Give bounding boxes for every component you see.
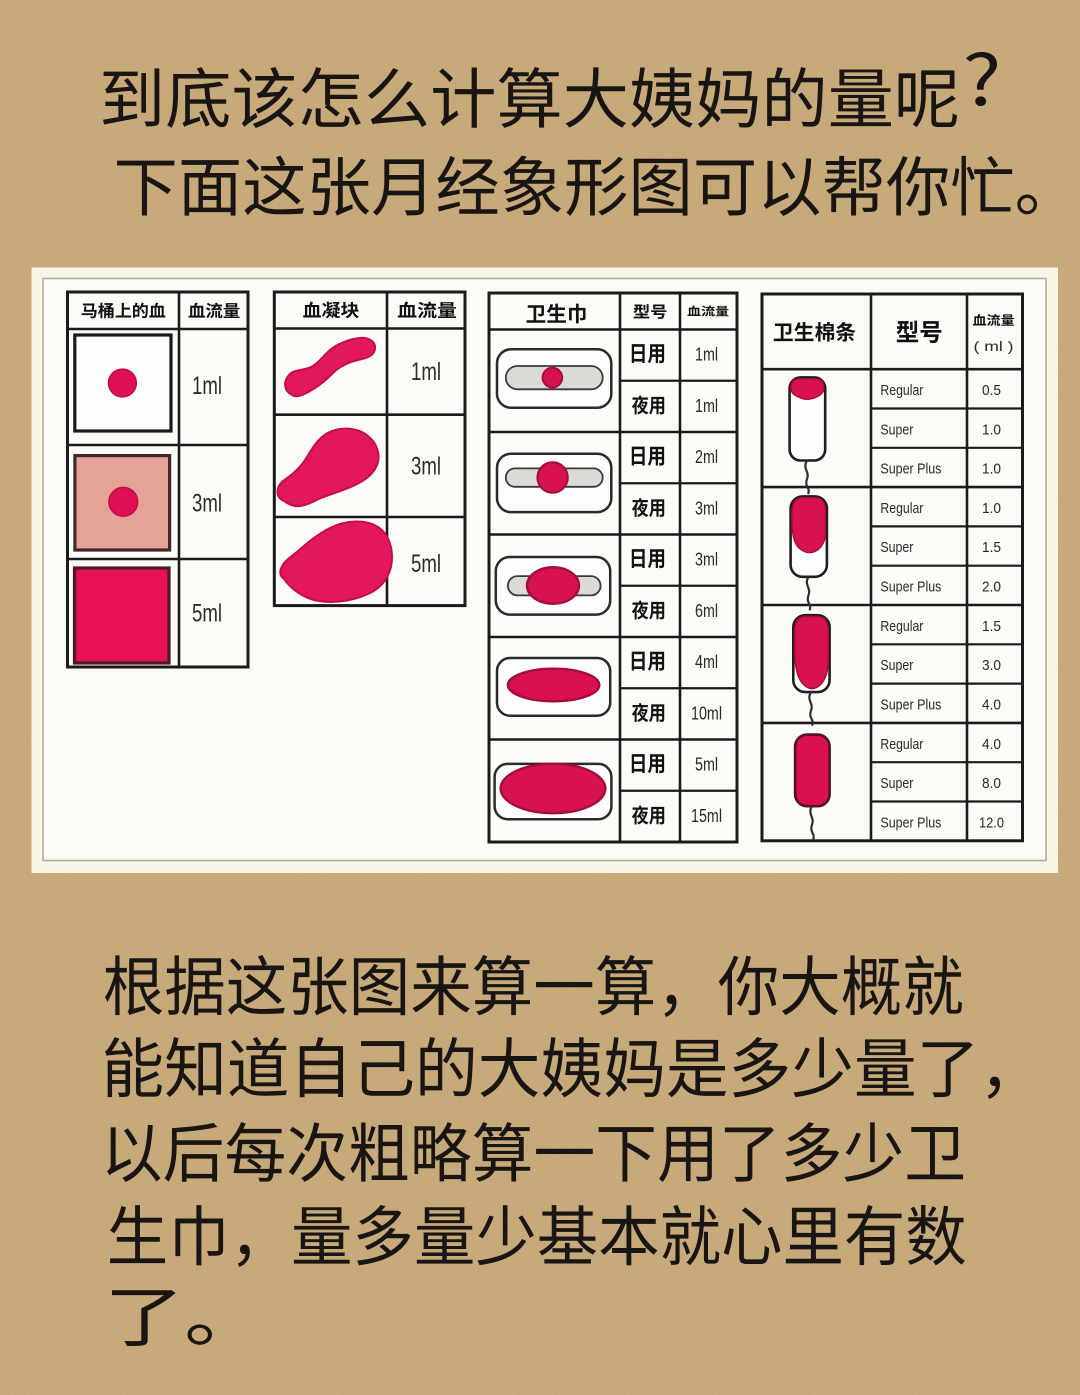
- svg-text:4.0: 4.0: [982, 697, 1001, 714]
- svg-text:Super Plus: Super Plus: [880, 579, 941, 596]
- svg-text:5ml: 5ml: [411, 550, 441, 578]
- svg-text:5ml: 5ml: [695, 754, 718, 775]
- svg-text:Super: Super: [880, 539, 913, 556]
- svg-text:1ml: 1ml: [695, 344, 718, 365]
- svg-text:3ml: 3ml: [695, 549, 718, 570]
- svg-text:3ml: 3ml: [695, 497, 718, 518]
- svg-text:1ml: 1ml: [192, 372, 222, 400]
- svg-text:3ml: 3ml: [192, 490, 222, 518]
- svg-text:1.0: 1.0: [982, 461, 1001, 478]
- svg-text:6ml: 6ml: [695, 600, 718, 621]
- svg-text:Super Plus: Super Plus: [880, 697, 941, 714]
- svg-text:Super Plus: Super Plus: [880, 814, 941, 831]
- svg-text:8.0: 8.0: [982, 775, 1001, 792]
- svg-text:1.0: 1.0: [982, 500, 1001, 517]
- svg-text:1ml: 1ml: [695, 395, 718, 416]
- svg-text:4.0: 4.0: [982, 736, 1001, 753]
- svg-text:15ml: 15ml: [691, 805, 722, 826]
- svg-text:2.0: 2.0: [982, 579, 1001, 596]
- svg-text:1.5: 1.5: [982, 618, 1001, 635]
- svg-text:Super: Super: [880, 775, 913, 792]
- svg-text:( ml ): ( ml ): [974, 338, 1014, 354]
- svg-text:12.0: 12.0: [979, 814, 1004, 831]
- svg-text:3.0: 3.0: [982, 657, 1001, 674]
- svg-text:Regular: Regular: [880, 736, 923, 753]
- svg-text:0.5: 0.5: [982, 382, 1001, 399]
- svg-text:Regular: Regular: [880, 618, 923, 635]
- svg-text:1ml: 1ml: [411, 358, 441, 386]
- svg-text:3ml: 3ml: [411, 453, 441, 481]
- svg-text:5ml: 5ml: [192, 600, 222, 628]
- svg-text:1.0: 1.0: [982, 421, 1001, 438]
- svg-text:Super: Super: [880, 421, 913, 438]
- svg-text:1.5: 1.5: [982, 539, 1001, 556]
- svg-text:2ml: 2ml: [695, 446, 718, 467]
- svg-text:10ml: 10ml: [691, 702, 722, 723]
- svg-text:Regular: Regular: [880, 382, 923, 399]
- svg-text:Regular: Regular: [880, 500, 923, 517]
- svg-text:4ml: 4ml: [695, 651, 718, 672]
- svg-text:Super Plus: Super Plus: [880, 461, 941, 478]
- svg-text:Super: Super: [880, 657, 913, 674]
